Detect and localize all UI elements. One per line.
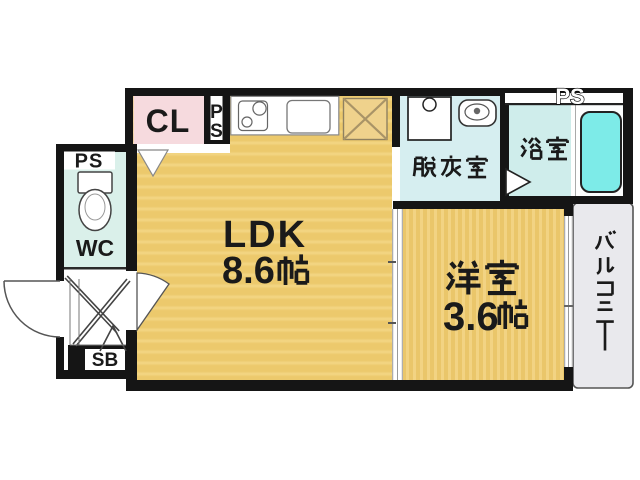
svg-text:WC: WC xyxy=(76,235,114,261)
svg-text:PS: PS xyxy=(75,151,104,173)
svg-text:P: P xyxy=(210,102,223,123)
svg-text:8.6: 8.6 xyxy=(222,250,275,292)
svg-text:CL: CL xyxy=(146,103,191,139)
svg-text:PS: PS xyxy=(555,84,584,109)
svg-text:3.6: 3.6 xyxy=(443,295,499,339)
svg-text:S: S xyxy=(210,121,223,142)
svg-text:SB: SB xyxy=(92,350,118,371)
